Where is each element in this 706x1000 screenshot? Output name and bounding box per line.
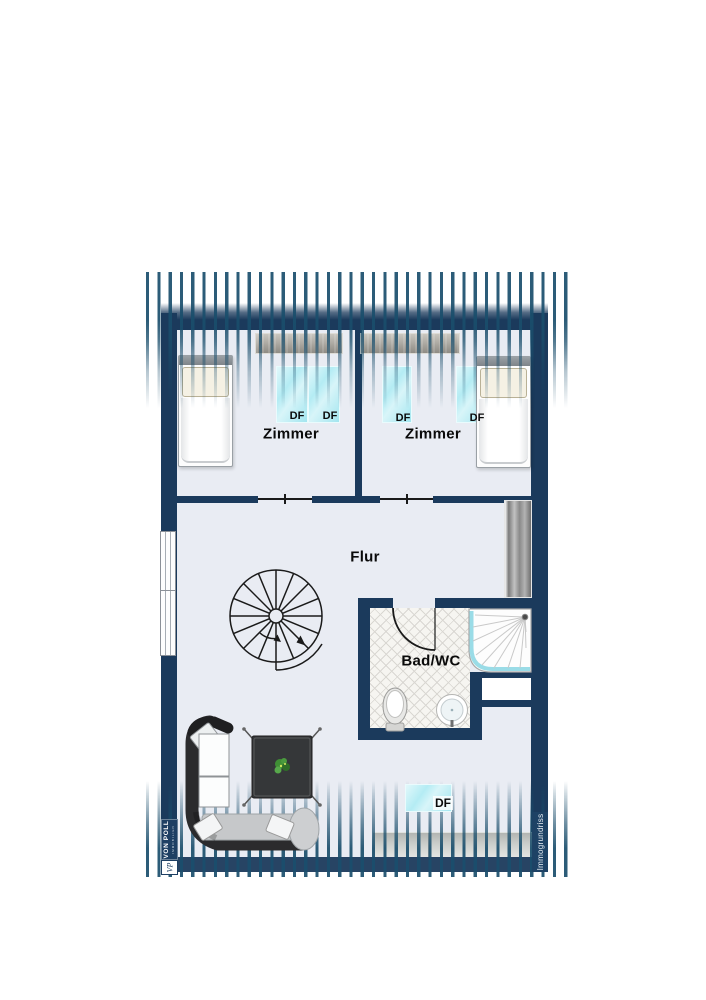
bathroom-wall-left (358, 598, 370, 740)
wall-niche (482, 678, 531, 700)
skylight-label: DF (323, 410, 338, 422)
room-label-zimmer-left: Zimmer (263, 426, 319, 443)
wall-right (531, 313, 548, 872)
window-divider (161, 590, 175, 591)
bed-left-room (178, 355, 233, 467)
floor-plan-canvas: Zimmer Zimmer Flur Bad/WC DF DF DF DF DF… (0, 0, 706, 1000)
room-label-zimmer-right: Zimmer (405, 426, 461, 443)
wall-middle-segment (312, 496, 380, 503)
room-label-flur: Flur (350, 549, 380, 566)
sink (435, 694, 469, 728)
toilet (382, 686, 408, 732)
shower-head (522, 614, 528, 620)
bed-pillow (480, 368, 527, 398)
bathroom-wall-bottom (358, 728, 482, 740)
window-pane-line (165, 532, 166, 655)
watermark-badge: Immogrundriss (532, 812, 548, 872)
agency-badge: VON POLL IMMOBILIEN (161, 819, 178, 860)
bathroom-door-swing (386, 602, 438, 654)
room-label-bad-wc: Bad/WC (401, 653, 460, 670)
sideboard-divider (428, 833, 429, 857)
spiral-staircase (227, 565, 327, 677)
skylight-label: DF (470, 412, 485, 424)
door-opening-tick (406, 494, 408, 504)
window-symbol (160, 531, 176, 656)
window-pane-line (170, 532, 171, 655)
bed-headboard (477, 357, 530, 366)
skylight-label: DF (396, 412, 411, 424)
bed-pillow (182, 367, 229, 397)
skylight-label: DF (433, 796, 453, 810)
sink-faucet (451, 720, 454, 727)
shelf-left-room (255, 333, 343, 354)
agency-name: VON POLL (164, 820, 171, 858)
wardrobe (504, 500, 532, 598)
wall-bottom (161, 857, 548, 872)
agency-monogram-box: VP (161, 860, 178, 875)
wall-top (161, 303, 548, 330)
agency-monogram: VP (165, 863, 174, 873)
table-with-plant (242, 726, 322, 808)
sideboard (373, 832, 532, 857)
wall-bedroom-divider (355, 330, 362, 496)
door-opening-tick (284, 494, 286, 504)
agency-subtitle: IMMOBILIEN (172, 825, 175, 854)
bed-headboard (179, 356, 232, 365)
wall-middle-segment (177, 496, 258, 503)
niche-wall-bottom (482, 700, 531, 707)
skylight-label: DF (290, 410, 305, 422)
watermark-text: Immogrundriss (536, 814, 545, 871)
bed-blanket (479, 399, 528, 464)
shelf-right-room (360, 333, 460, 354)
bed-blanket (181, 398, 230, 463)
shower (468, 608, 532, 673)
